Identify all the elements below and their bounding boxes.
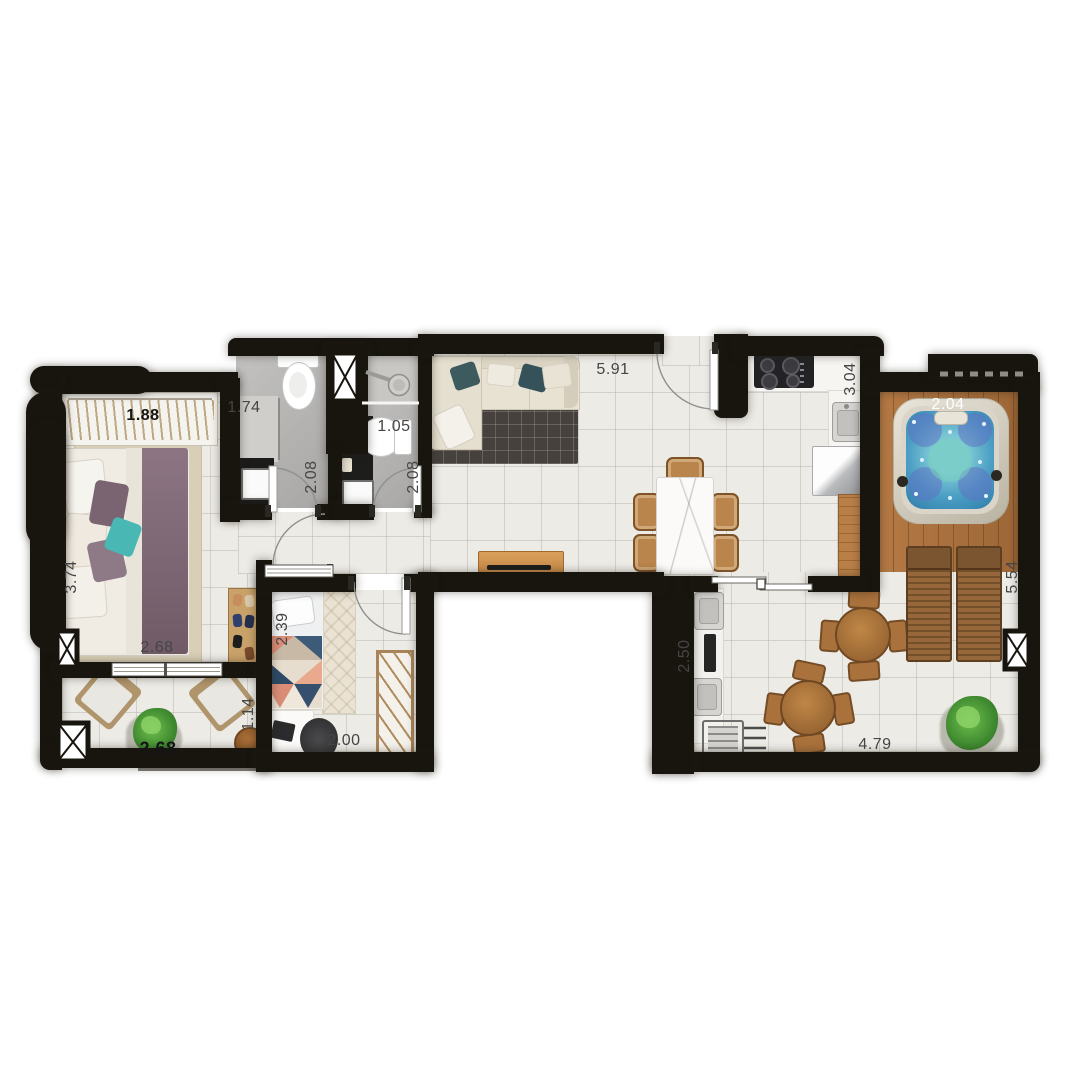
burner	[786, 374, 800, 388]
wall	[928, 354, 1038, 376]
wall	[416, 574, 434, 772]
wall	[418, 572, 664, 592]
wall	[54, 662, 258, 678]
wall	[256, 574, 356, 592]
bath1-sink	[241, 468, 271, 500]
sun-lounger	[956, 546, 1002, 662]
candle	[342, 458, 352, 472]
wall	[256, 752, 434, 772]
wall	[808, 576, 862, 592]
wall	[694, 576, 718, 592]
dim-bath1-width: 1.74	[227, 399, 260, 417]
toilet-bowl-inner	[289, 372, 307, 398]
cushion	[541, 362, 572, 390]
spa-center	[928, 438, 972, 482]
dim-terrace-depth: 5.54	[1004, 560, 1022, 593]
shoes	[244, 595, 254, 608]
shoes	[244, 615, 255, 629]
shoes	[232, 635, 242, 649]
cup-holder	[897, 476, 908, 487]
refrigerator	[812, 446, 864, 496]
dim-bath2-depth: 2.08	[405, 460, 423, 493]
dim-bath2-width: 1.05	[377, 418, 410, 436]
tv	[487, 565, 551, 570]
cooktop	[754, 354, 814, 388]
shoes	[232, 593, 243, 606]
dim-balcony-width: 2.68	[139, 739, 176, 760]
lounger-headrest	[908, 548, 950, 570]
spa-jets	[912, 420, 916, 424]
terrace-chair	[847, 660, 880, 682]
dim-living-width: 5.91	[596, 361, 629, 379]
dining-chair	[711, 534, 739, 572]
wall	[30, 424, 66, 650]
shoes	[244, 646, 255, 660]
dim-terrace-width: 4.79	[858, 736, 891, 754]
cushion	[486, 363, 516, 388]
dim-bed2-length: 2.39	[274, 612, 292, 645]
entry-floor	[662, 336, 714, 366]
lounger-headrest	[958, 548, 1000, 570]
sun-lounger	[906, 546, 952, 662]
dining-table	[656, 477, 714, 575]
dim-spa-width: 2.04	[931, 396, 964, 414]
floor-plan: 1.88 1.74 1.05 5.91 3.04 2.04 2.08 2.08 …	[0, 0, 1080, 1080]
plant-highlight	[141, 716, 161, 734]
wall	[652, 576, 694, 774]
dim-bed2-width: 2.00	[327, 732, 360, 750]
outdoor-sink-basin	[697, 684, 717, 710]
outdoor-sink-basin	[699, 598, 719, 624]
wall	[338, 504, 374, 520]
counter-appliance	[704, 634, 716, 672]
dim-grill-depth: 2.50	[676, 639, 694, 672]
faucet	[844, 404, 849, 409]
wall	[228, 504, 272, 520]
burner	[761, 373, 778, 390]
knob-row	[800, 359, 804, 383]
bedroom2-rug	[322, 586, 356, 714]
wall	[652, 752, 1040, 772]
burner	[782, 357, 800, 375]
wall	[36, 372, 238, 392]
wall	[418, 334, 664, 354]
dining-chair	[711, 493, 739, 531]
bed2-blanket	[266, 636, 322, 708]
round-table	[780, 680, 836, 736]
shoes	[232, 614, 242, 628]
open-wardrobe	[376, 650, 414, 758]
cup-holder	[991, 470, 1002, 481]
kitchen-sink-basin	[837, 410, 859, 436]
round-table	[835, 607, 891, 663]
bath2-shower-area	[362, 350, 420, 402]
bed-duvet	[140, 448, 188, 654]
dim-balcony-depth: 1.14	[240, 697, 258, 730]
dim-bath1-depth: 2.08	[303, 460, 321, 493]
dim-kitchen-depth: 3.04	[842, 362, 860, 395]
plant-highlight	[956, 706, 980, 728]
dim-master-width: 2.68	[140, 639, 173, 657]
dim-master-closet: 1.88	[126, 407, 159, 425]
dim-master-depth: 3.74	[63, 560, 81, 593]
burner	[760, 358, 775, 373]
wall	[326, 344, 368, 454]
